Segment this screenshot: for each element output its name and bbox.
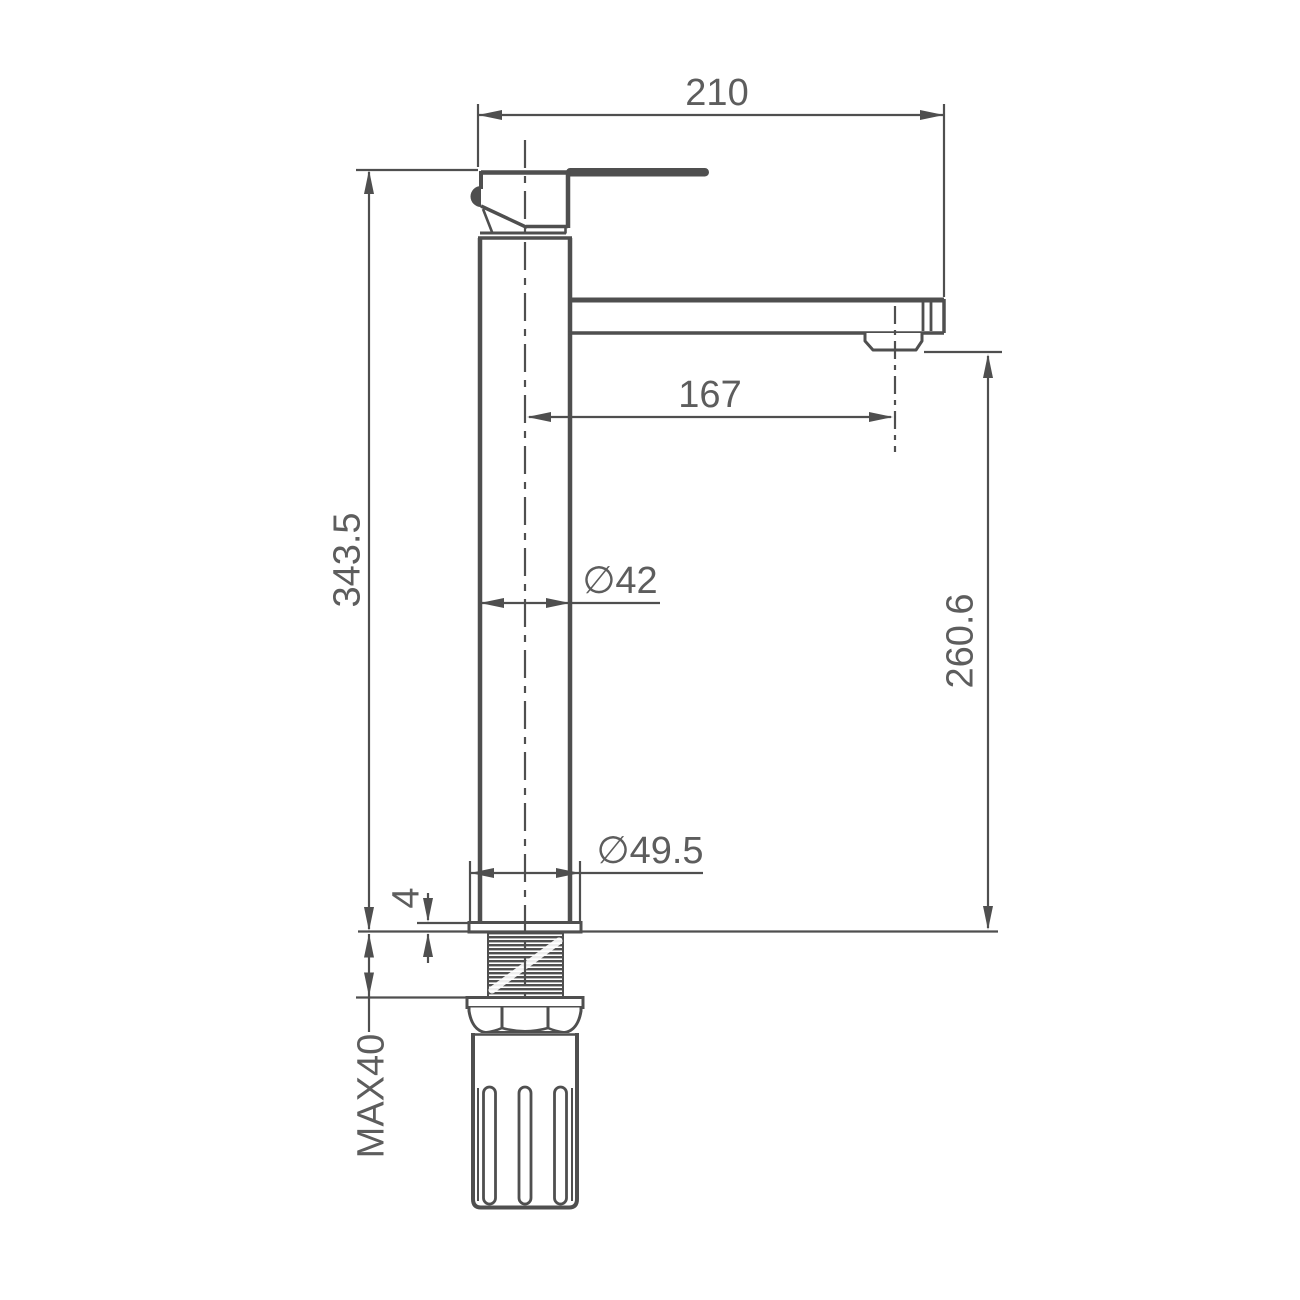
faucet-dimension-drawing: 210 167 343.5 ∅42	[0, 0, 1300, 1300]
dim-spout-reach: 167	[527, 374, 893, 422]
dim-top-width: 210	[478, 72, 944, 297]
arrow-up	[423, 933, 433, 957]
dim-label-spout-reach: 167	[678, 374, 741, 416]
dim-label-top-width: 210	[685, 72, 748, 114]
dim-max-deck-thickness: MAX40	[350, 934, 468, 1159]
arrow-right	[546, 598, 570, 608]
arrow-down	[364, 973, 374, 997]
mounting-nut-hex	[469, 1008, 581, 1033]
dimensions: 210 167 343.5 ∅42	[326, 72, 1002, 1158]
mounting-nut-ring	[467, 998, 583, 1008]
arrow-right	[920, 110, 944, 120]
dim-label-base-thickness: 4	[385, 887, 427, 908]
technical-drawing-canvas: 210 167 343.5 ∅42	[0, 0, 1300, 1300]
aerator	[865, 333, 922, 350]
handle-lever	[566, 168, 709, 177]
arrow-left	[480, 598, 504, 608]
cartridge-pivot-bump	[471, 186, 482, 207]
arrow-up	[364, 170, 374, 194]
dim-base-diameter: ∅49.5	[470, 830, 704, 921]
handle-body	[471, 171, 569, 232]
arrow-left	[527, 412, 551, 422]
knurled-nut	[473, 1033, 577, 1208]
arrow-right	[869, 412, 893, 422]
spout	[568, 299, 944, 333]
dim-overall-height: 343.5	[326, 170, 478, 931]
dim-base-thickness: 4	[385, 887, 469, 963]
dim-label-body-diameter: ∅42	[582, 560, 657, 602]
faucet-outline	[467, 168, 944, 1208]
arrow-up	[364, 934, 374, 958]
arrow-down	[983, 906, 993, 930]
dim-label-spout-height: 260.6	[939, 593, 981, 688]
arrow-down	[364, 907, 374, 931]
dim-label-overall-height: 343.5	[326, 512, 368, 607]
dim-label-max-deck-thickness: MAX40	[350, 1034, 392, 1159]
arrow-up	[983, 354, 993, 378]
arrow-left	[478, 110, 502, 120]
dim-spout-height: 260.6	[924, 352, 1002, 930]
dim-label-base-diameter: ∅49.5	[596, 830, 703, 872]
